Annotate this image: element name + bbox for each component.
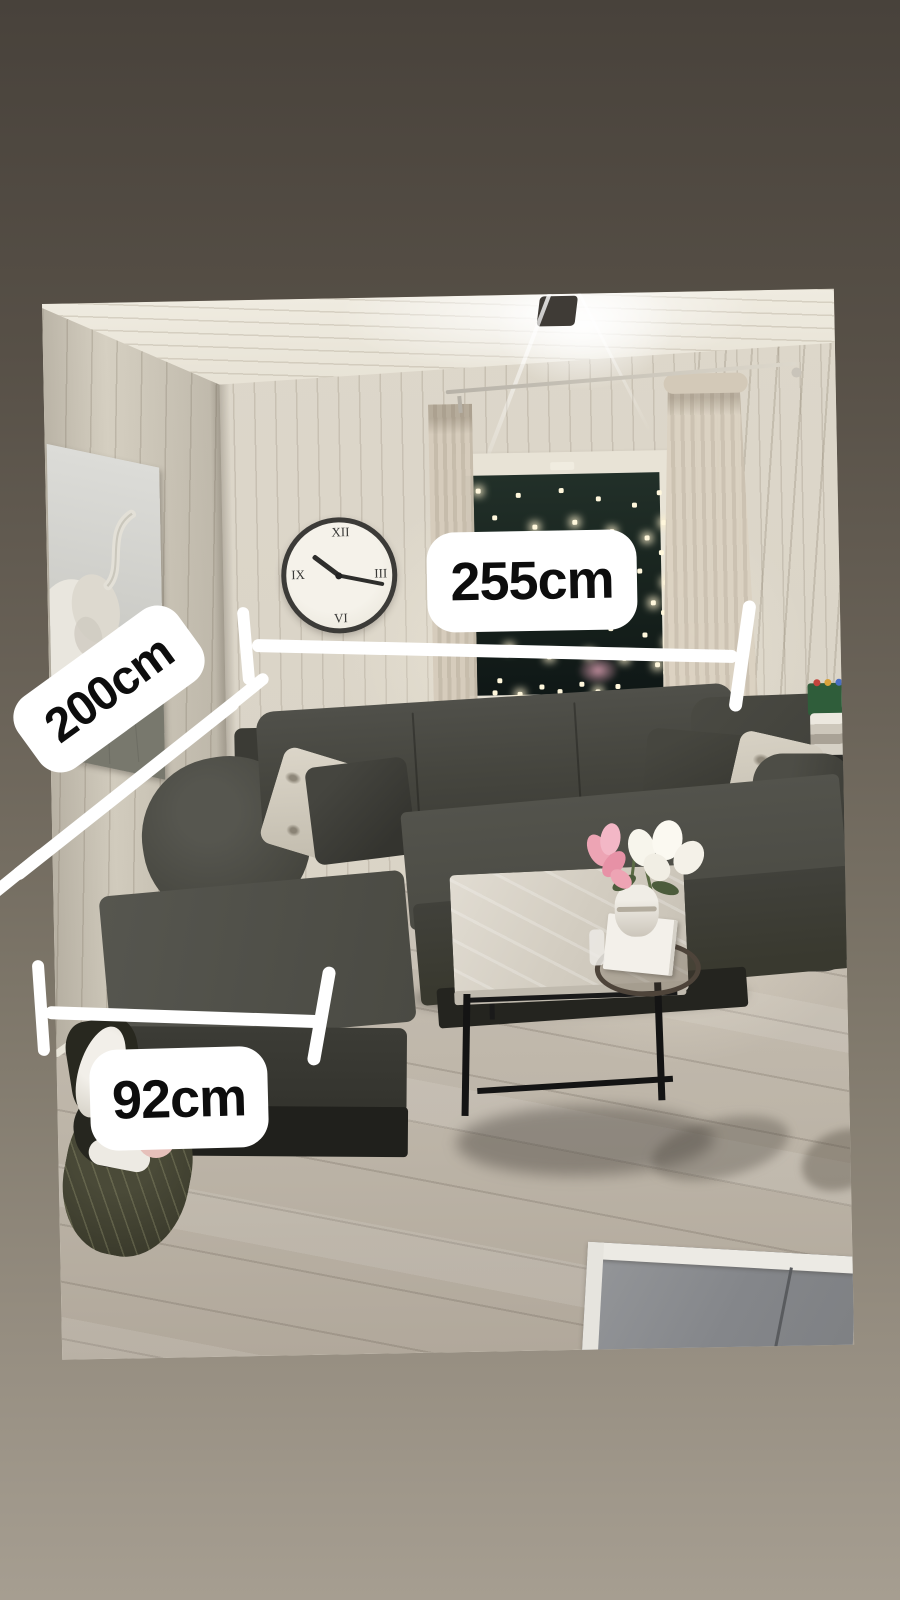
panel-seam (771, 1267, 793, 1360)
clock-numeral-12: XII (331, 524, 349, 540)
cushion-seam (412, 713, 421, 823)
window-latch (550, 462, 574, 470)
clock-numeral-9: IX (291, 567, 305, 583)
curtain-gather (663, 372, 747, 394)
toy (824, 679, 831, 686)
dark-pillow (304, 756, 417, 866)
toy (835, 679, 842, 686)
framed-panel-bottom-right (582, 1242, 854, 1360)
clock-numeral-3: III (374, 565, 387, 581)
vase-band (617, 906, 657, 912)
clock-center (335, 572, 342, 579)
story-screenshot: XII III VI IX (0, 0, 900, 1600)
toy (813, 679, 820, 686)
toy-crate (807, 683, 850, 716)
fairy-lights (42, 304, 43, 305)
clock-numeral-6: VI (334, 610, 348, 626)
living-room-photo: XII III VI IX (42, 289, 854, 1360)
measurement-label-92: 92cm (89, 1046, 270, 1152)
measurement-label-255: 255cm (426, 529, 638, 633)
small-bottle (589, 929, 605, 965)
